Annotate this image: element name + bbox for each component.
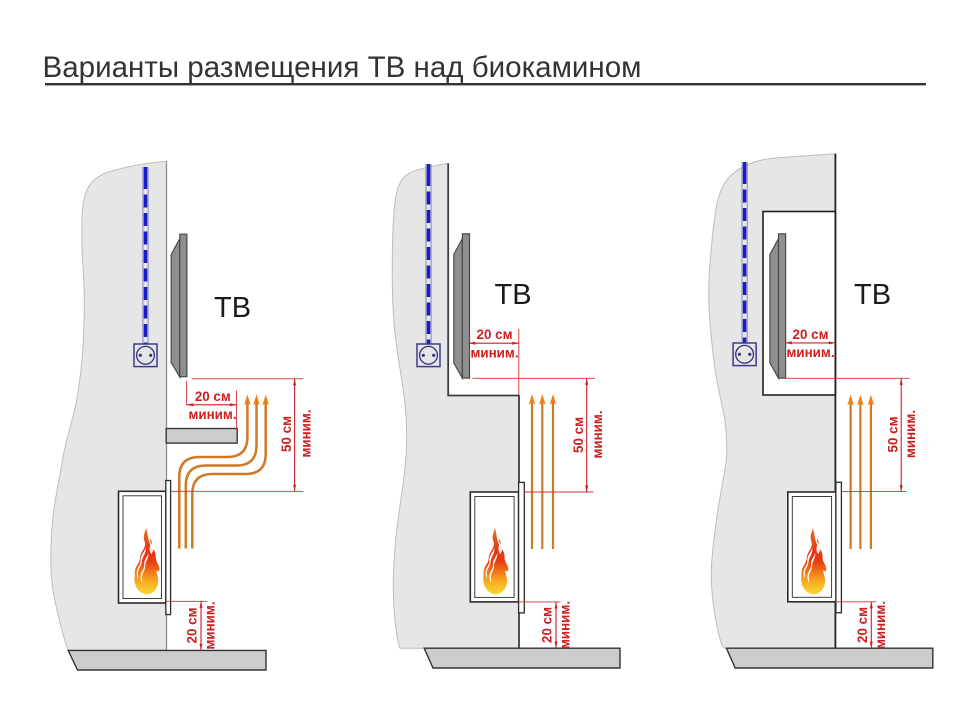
svg-text:Варианты размещения ТВ над био: Варианты размещения ТВ над биокамином bbox=[43, 51, 642, 84]
svg-text:миним.: миним. bbox=[903, 410, 918, 458]
svg-text:миним.: миним. bbox=[299, 409, 314, 457]
svg-text:миним.: миним. bbox=[188, 407, 236, 422]
svg-text:миним.: миним. bbox=[786, 345, 834, 360]
svg-text:миним.: миним. bbox=[873, 601, 888, 649]
svg-text:50 см: 50 см bbox=[279, 416, 294, 452]
svg-text:ТВ: ТВ bbox=[854, 279, 891, 311]
svg-text:20 см: 20 см bbox=[185, 608, 200, 644]
svg-text:ТВ: ТВ bbox=[495, 279, 532, 311]
svg-text:20 см: 20 см bbox=[540, 607, 555, 643]
svg-text:20 см: 20 см bbox=[195, 389, 231, 404]
svg-text:50 см: 50 см bbox=[571, 417, 586, 453]
svg-text:20 см: 20 см bbox=[855, 607, 870, 643]
svg-text:миним.: миним. bbox=[203, 601, 218, 649]
svg-text:миним.: миним. bbox=[470, 345, 518, 360]
svg-text:20 см: 20 см bbox=[793, 327, 829, 342]
svg-text:миним.: миним. bbox=[558, 601, 573, 649]
svg-text:50 см: 50 см bbox=[886, 417, 901, 453]
svg-text:миним.: миним. bbox=[590, 410, 605, 458]
svg-text:20 см: 20 см bbox=[477, 327, 513, 342]
svg-text:ТВ: ТВ bbox=[214, 292, 251, 324]
